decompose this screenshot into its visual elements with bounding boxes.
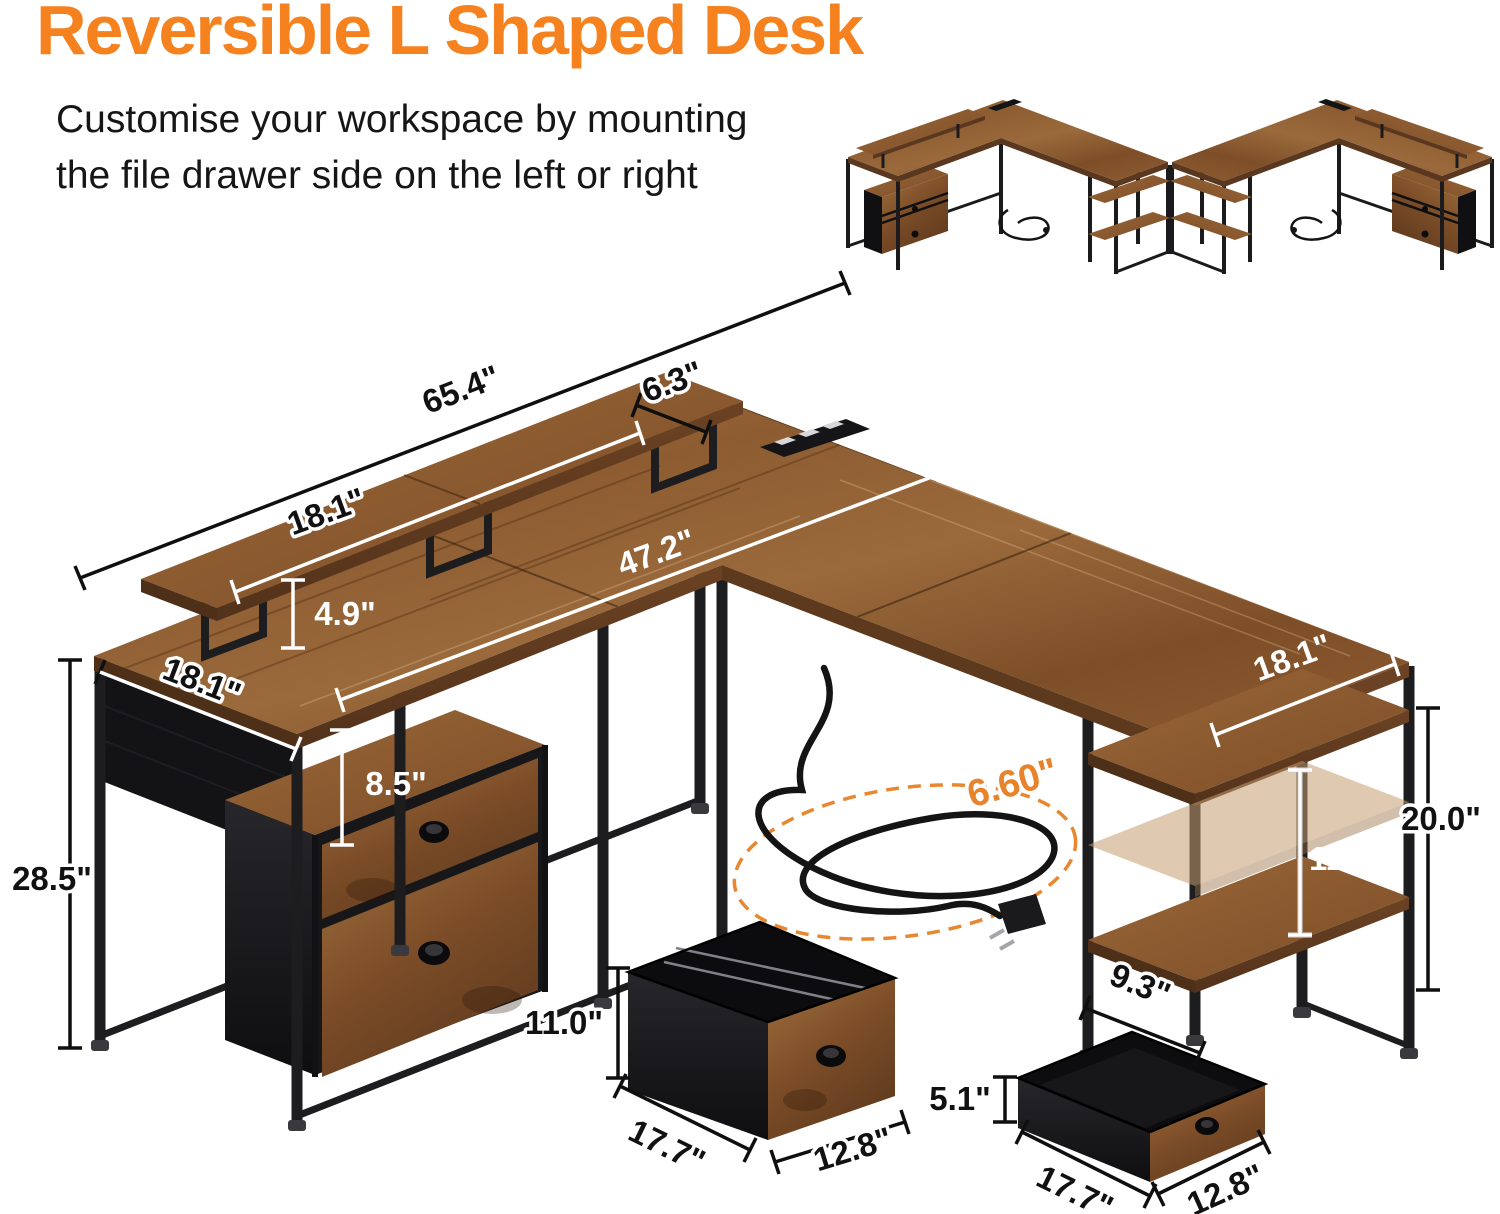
dim-top-drawer-height-label: 5.1"	[929, 1080, 991, 1117]
dim-desk-height-label: 28.5"	[12, 860, 92, 897]
dim-shelf-column-height-label: 20.0"	[1401, 800, 1481, 837]
file-drawer-box	[628, 922, 895, 1140]
dim-file-drawer-depth-label: 17.7"	[623, 1112, 711, 1180]
dim-top-drawer-depth-label: 17.7"	[1031, 1158, 1119, 1214]
dim-monitor-shelf-height-label: 4.9"	[314, 595, 376, 632]
product-infographic: Reversible L Shaped Desk Customise your …	[0, 0, 1500, 1214]
dim-overall-width-label: 65.4"	[417, 358, 505, 421]
power-plug	[998, 894, 1046, 934]
dim-file-drawer-height-label: 11.0"	[525, 1004, 603, 1041]
thumbnail-desk-right-config-mirrored	[1170, 99, 1492, 274]
frame-bar-wing	[1302, 1003, 1409, 1046]
dim-desk-height: 28.5"	[12, 660, 92, 1048]
dim-top-drawer-height: 5.1"	[929, 1077, 1017, 1122]
dim-shelf-spacing-label: 11.7"	[1309, 840, 1387, 877]
dim-cabinet-clearance-label: 8.5"	[365, 765, 427, 802]
thumbnail-desk-left-config	[848, 99, 1170, 274]
power-cable-group	[724, 668, 1085, 959]
desk-dimension-diagram: 65.4" 6.3" 18.1" 4.9" 47.2" 18.1" 8.5"	[0, 0, 1500, 1214]
dim-file-drawer-width-label: 12.8"	[809, 1120, 896, 1179]
dim-top-drawer-width-label: 12.8"	[1181, 1156, 1269, 1214]
